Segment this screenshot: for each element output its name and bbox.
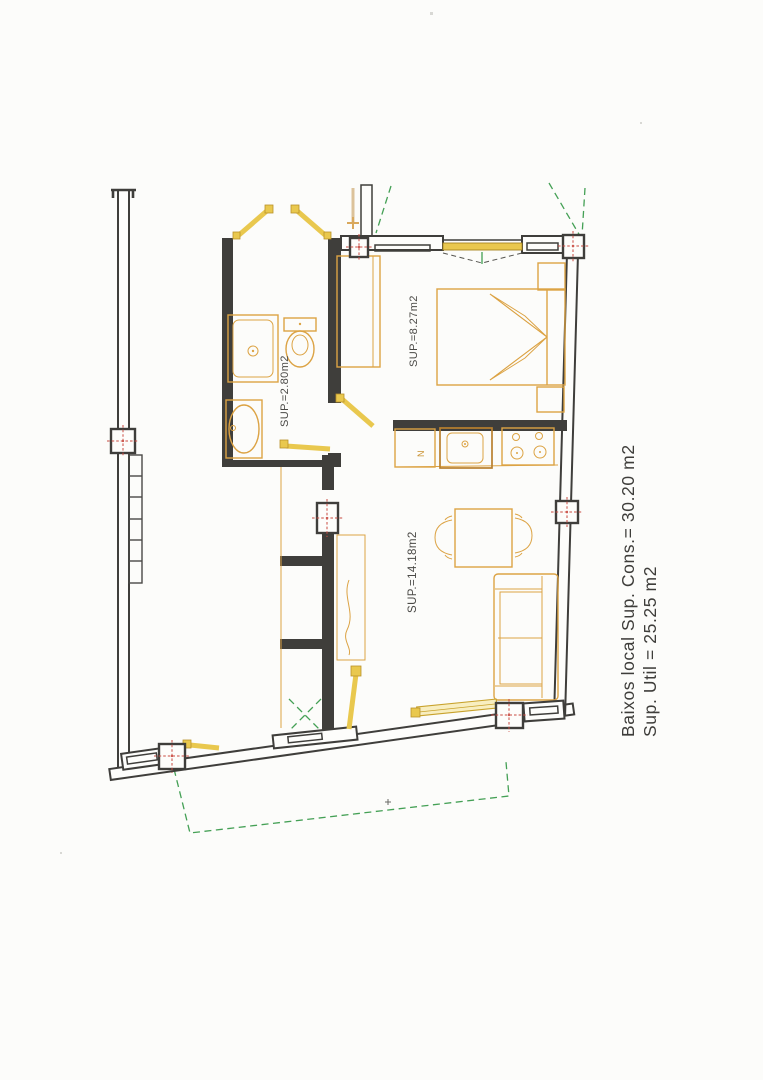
kitchen-sink: [440, 428, 492, 468]
area-label-bathroom: SUP.=2.80m2: [279, 355, 291, 427]
fridge-label: N: [416, 451, 426, 458]
area-label-bedroom: SUP.=8.27m2: [408, 295, 420, 367]
stair-shaft: [129, 455, 142, 583]
closet-stub-b: [280, 639, 322, 649]
kitchen: N: [395, 428, 558, 468]
main-entry-door: [411, 699, 497, 717]
area-label-living: SUP.=14.18m2: [407, 531, 419, 613]
wardrobe: [337, 256, 380, 367]
bedroom: SUP.=8.27m2: [328, 256, 567, 431]
dining-table: [435, 509, 532, 567]
shaft-cross: [289, 699, 321, 731]
column-corridor: [346, 234, 372, 261]
column-right-wall: [551, 497, 583, 527]
living-room-door: [349, 666, 361, 729]
bedroom-door: [328, 390, 373, 426]
door-bottom-left: [183, 740, 219, 748]
closet-stub-a: [280, 556, 322, 566]
annotation-line-2: Sup. Util = 25.25 m2: [640, 566, 660, 737]
column-bottom-left: [154, 740, 190, 773]
boundary-dash-top-left: [376, 186, 391, 233]
hall-wall-upper: [322, 455, 334, 490]
column-left-wall: [107, 425, 139, 457]
living-dining-room: SUP.=14.18m2: [280, 455, 558, 740]
shower: [228, 315, 278, 382]
sofa: [494, 574, 558, 700]
column-hallway: [312, 499, 343, 537]
boundary-dash-top-right-a: [549, 183, 580, 236]
scanned-floor-plan-page: SUP.=2.80m2 SUP.: [0, 0, 763, 1080]
sideboard: [337, 535, 365, 660]
nightstand-top: [538, 263, 565, 290]
entry-double-door: [233, 205, 331, 239]
floor-plan-drawing: SUP.=2.80m2 SUP.: [0, 0, 763, 1080]
exterior-walls: [109, 185, 578, 780]
column-top-right: [558, 231, 589, 262]
plot-boundary-dashed: [174, 762, 509, 833]
annotation-block: Baixos local Sup. Cons.= 30.20 m2 Sup. U…: [618, 444, 660, 737]
window-bottom-right: [523, 701, 564, 722]
fridge: N: [395, 429, 435, 467]
bathroom-door: [280, 440, 330, 449]
hall-wall-lower: [322, 533, 334, 740]
columns: [107, 231, 589, 773]
annotation-line-1: Baixos local Sup. Cons.= 30.20 m2: [618, 444, 638, 737]
party-wall-stub: [361, 185, 372, 236]
column-bottom-right: [491, 699, 528, 732]
survey-mark: [385, 799, 391, 805]
bathroom-bottom-wall: [222, 460, 334, 467]
bathroom-right-wall: [328, 238, 341, 403]
double-bed: [437, 289, 565, 385]
nightstand-bottom: [537, 387, 564, 412]
bedroom-window: [443, 240, 522, 264]
duct-marker: [347, 188, 359, 229]
left-exterior-wall: [118, 190, 129, 776]
boundary-dash-top-right-b: [582, 188, 585, 236]
bathroom: SUP.=2.80m2: [222, 238, 341, 467]
stove: [502, 428, 554, 465]
